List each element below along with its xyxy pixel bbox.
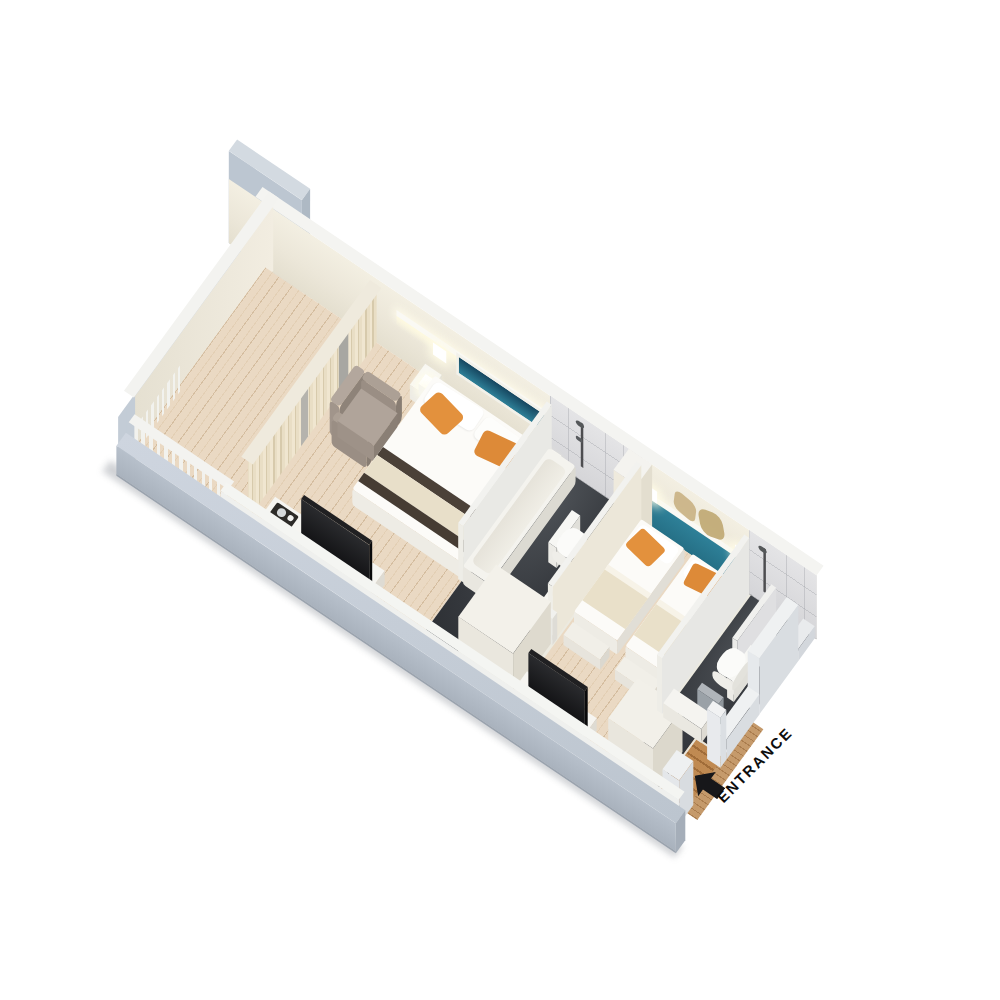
shower-pole-2 xyxy=(763,548,765,594)
door-jamb-right-side xyxy=(720,710,726,768)
door-jamb-right-front xyxy=(707,709,720,768)
floorplan-scene: ENTRANCE xyxy=(0,0,1000,1000)
shower-pole-1 xyxy=(581,422,583,468)
